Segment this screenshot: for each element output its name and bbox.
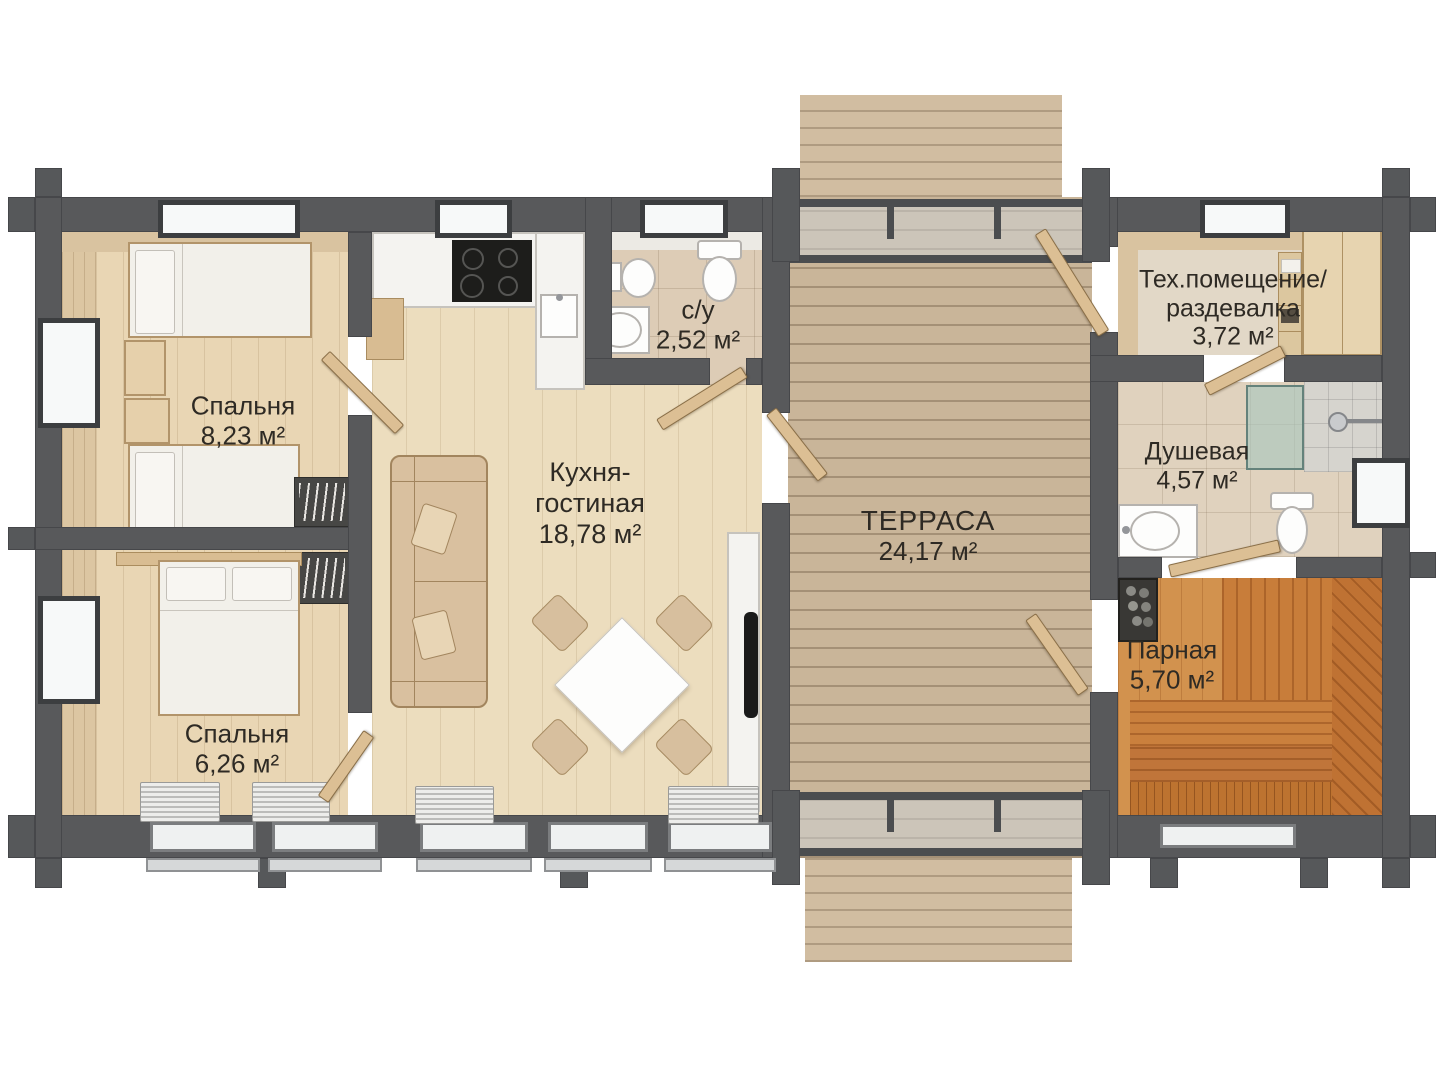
- wall-inner-face-left-tech: [1118, 250, 1138, 355]
- wall-bedrooms-right-a: [348, 232, 372, 337]
- terrace-post: [772, 168, 800, 262]
- log-end: [1150, 858, 1178, 888]
- bookshelf: [294, 477, 350, 527]
- pillow: [166, 567, 226, 601]
- shower-sink: [1130, 511, 1180, 551]
- sofa-pillow: [411, 609, 457, 660]
- log-end: [1300, 858, 1328, 888]
- label-bedroom-bottom: Спальня 6,26 м²: [185, 719, 289, 778]
- terrace-post: [1082, 790, 1110, 885]
- room-area: 18,78 м²: [535, 518, 645, 549]
- sofa-pillow: [410, 503, 458, 556]
- curtain-mat: [668, 786, 759, 824]
- threshold: [544, 858, 652, 872]
- bookshelf: [294, 552, 350, 604]
- room-name: ТЕРРАСА: [861, 505, 996, 537]
- window-bedroom-bottom-west: [38, 596, 100, 704]
- pillow: [135, 452, 175, 535]
- log-end: [8, 527, 35, 550]
- curtain-mat: [252, 782, 330, 822]
- room-name: гостиная: [535, 488, 645, 519]
- shower-toilet-bowl: [1276, 506, 1308, 554]
- cooktop: [452, 240, 532, 302]
- sofa-armrest: [392, 457, 486, 482]
- room-area: 3,72 м²: [1139, 322, 1327, 351]
- single-bed-1: [128, 242, 312, 338]
- glass-door-south: [272, 822, 378, 852]
- label-sauna: Парная 5,70 м²: [1127, 635, 1218, 694]
- window-bathroom-north: [640, 200, 728, 238]
- wardrobe-divider: [1342, 230, 1343, 354]
- glass-door-south: [420, 822, 528, 852]
- label-bathroom: с/у 2,52 м²: [656, 295, 740, 354]
- log-end: [1382, 168, 1410, 197]
- wall-shower-sauna-b: [1296, 557, 1382, 578]
- burner: [462, 248, 484, 270]
- terrace-deck-upper: [800, 95, 1062, 197]
- terrace-post: [1082, 168, 1110, 262]
- window-tech-room-north: [1200, 200, 1290, 238]
- glass-door-south: [548, 822, 648, 852]
- sauna-bench-right: [1332, 578, 1382, 815]
- log-end: [1410, 197, 1436, 232]
- nightstand: [124, 398, 170, 444]
- window-bedroom-top-north: [158, 200, 300, 238]
- wall-bathroom-left: [585, 197, 612, 385]
- nightstand: [124, 340, 166, 396]
- label-bedroom-top: Спальня 8,23 м²: [191, 391, 295, 450]
- window-bedroom-top-west: [38, 318, 100, 428]
- room-name: Душевая: [1145, 438, 1249, 467]
- wall-bathroom-bottom-b: [746, 358, 762, 385]
- blanket-fold: [182, 244, 183, 336]
- room-name: Кухня-: [535, 457, 645, 488]
- curtain-mat: [415, 786, 494, 824]
- shower-head: [1328, 412, 1348, 432]
- log-end: [35, 168, 62, 197]
- label-shower-room: Душевая 4,57 м²: [1145, 438, 1249, 495]
- kitchen-sink: [540, 294, 578, 338]
- log-end: [8, 197, 35, 232]
- sofa-back: [392, 457, 415, 706]
- label-tech-room: Тех.помещение/ раздевалка 3,72 м²: [1139, 265, 1327, 351]
- faucet: [1122, 526, 1130, 534]
- faucet: [556, 294, 563, 301]
- log-end: [1410, 552, 1436, 578]
- threshold: [416, 858, 532, 872]
- sauna-floor-deck: [1130, 782, 1332, 815]
- sofa: [390, 455, 488, 708]
- burner: [460, 274, 484, 298]
- threshold: [664, 858, 776, 872]
- roof-beam: [887, 207, 894, 239]
- curtain-mat: [140, 782, 220, 822]
- blanket-fold: [160, 610, 298, 611]
- double-bed: [158, 560, 300, 716]
- burner: [498, 248, 518, 268]
- glass-door-south: [668, 822, 772, 852]
- room-name: Парная: [1127, 635, 1218, 665]
- room-name: раздевалка: [1139, 294, 1327, 323]
- sofa-seat-split: [414, 581, 486, 582]
- roof-beam: [994, 800, 1001, 832]
- terrace-post: [772, 790, 800, 885]
- room-name: Тех.помещение/: [1139, 265, 1327, 294]
- wall-tech-shower-a: [1090, 355, 1204, 382]
- tv: [744, 612, 758, 718]
- log-end: [1410, 815, 1436, 858]
- blanket-fold: [182, 446, 183, 539]
- wall-bathroom-bottom-a: [585, 358, 710, 385]
- room-name: Спальня: [185, 719, 289, 749]
- log-end: [1382, 858, 1410, 888]
- sauna-heater: [1118, 578, 1158, 642]
- room-area: 8,23 м²: [191, 421, 295, 451]
- label-kitchen-living: Кухня- гостиная 18,78 м²: [535, 457, 645, 549]
- threshold: [268, 858, 382, 872]
- wall-shower-sauna-a: [1118, 557, 1162, 578]
- room-name: с/у: [656, 295, 740, 325]
- window-kitchen-north: [435, 200, 512, 238]
- room-area: 5,70 м²: [1127, 665, 1218, 695]
- roof-beam: [887, 800, 894, 832]
- sofa-armrest: [392, 681, 486, 706]
- shower-vanity: [1118, 504, 1198, 558]
- log-end: [35, 858, 62, 888]
- floor-plan: Спальня 8,23 м² Спальня 6,26 м² Кухня- г…: [0, 0, 1444, 1079]
- terrace-roof-beams-bottom: [788, 792, 1092, 856]
- window-shower-east: [1352, 458, 1410, 528]
- sauna-bench-upper-tier: [1130, 700, 1332, 746]
- terrace-deck-lower: [805, 858, 1072, 962]
- pillow: [135, 250, 175, 334]
- glass-door-south: [1160, 824, 1296, 848]
- room-area: 6,26 м²: [185, 749, 289, 779]
- wall-between-bedrooms: [35, 527, 350, 550]
- pillow: [232, 567, 292, 601]
- heater-stones: [1126, 586, 1136, 596]
- roof-beam: [994, 207, 1001, 239]
- wall-tech-shower-b: [1284, 355, 1382, 382]
- burner: [498, 276, 518, 296]
- label-terrace: ТЕРРАСА 24,17 м²: [861, 505, 996, 567]
- log-end: [8, 815, 35, 858]
- bidet-bowl: [621, 258, 656, 298]
- room-area: 4,57 м²: [1145, 466, 1249, 495]
- room-area: 24,17 м²: [861, 537, 996, 567]
- glass-door-south: [150, 822, 256, 852]
- room-name: Спальня: [191, 391, 295, 421]
- threshold: [146, 858, 260, 872]
- shower-glass-cabin: [1246, 385, 1304, 470]
- room-area: 2,52 м²: [656, 325, 740, 355]
- books: [299, 558, 345, 598]
- wall-bedrooms-right-b: [348, 415, 372, 713]
- sauna-bench-lower-tier: [1130, 746, 1332, 782]
- books: [299, 483, 345, 521]
